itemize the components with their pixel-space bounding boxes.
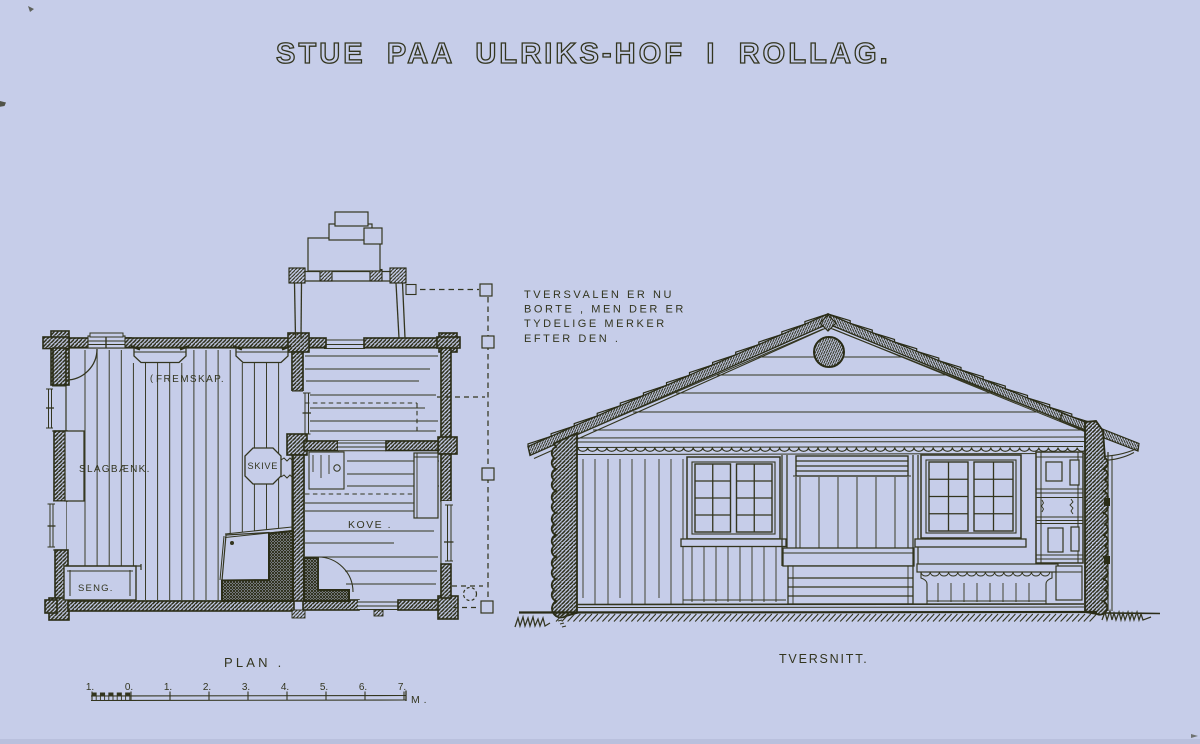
svg-text:2.: 2. [203, 682, 211, 693]
svg-text:4.: 4. [281, 682, 289, 693]
svg-text:SKIVE: SKIVE [248, 461, 279, 471]
svg-text:FREMSKAP.: FREMSKAP. [156, 374, 225, 385]
svg-text:1.: 1. [86, 682, 94, 693]
svg-text:6.: 6. [359, 682, 367, 693]
svg-text:1.: 1. [164, 682, 172, 693]
svg-text:KOVE .: KOVE . [348, 519, 392, 531]
svg-text:SLAGBÆNK.: SLAGBÆNK. [79, 464, 151, 475]
svg-text:(: ( [150, 373, 153, 383]
svg-text:M .: M . [411, 694, 427, 706]
svg-text:EFTER DEN .: EFTER DEN . [524, 333, 621, 345]
svg-text:STUE PAA ULRIKS-HOF I ROLLAG.: STUE PAA ULRIKS-HOF I ROLLAG. [276, 38, 891, 70]
svg-text:TVERSVALEN ER NU: TVERSVALEN ER NU [524, 289, 674, 301]
svg-text:3.: 3. [242, 682, 250, 693]
svg-text:7.: 7. [398, 682, 406, 693]
svg-text:BORTE , MEN DER ER: BORTE , MEN DER ER [524, 304, 686, 316]
svg-text:TYDELIGE MERKER: TYDELIGE MERKER [524, 318, 667, 330]
svg-text:0.: 0. [125, 682, 133, 693]
svg-text:SENG.: SENG. [78, 583, 114, 594]
svg-text:PLAN .: PLAN . [224, 655, 284, 670]
svg-text:5.: 5. [320, 682, 328, 693]
svg-text:TVERSNITT.: TVERSNITT. [779, 652, 869, 666]
